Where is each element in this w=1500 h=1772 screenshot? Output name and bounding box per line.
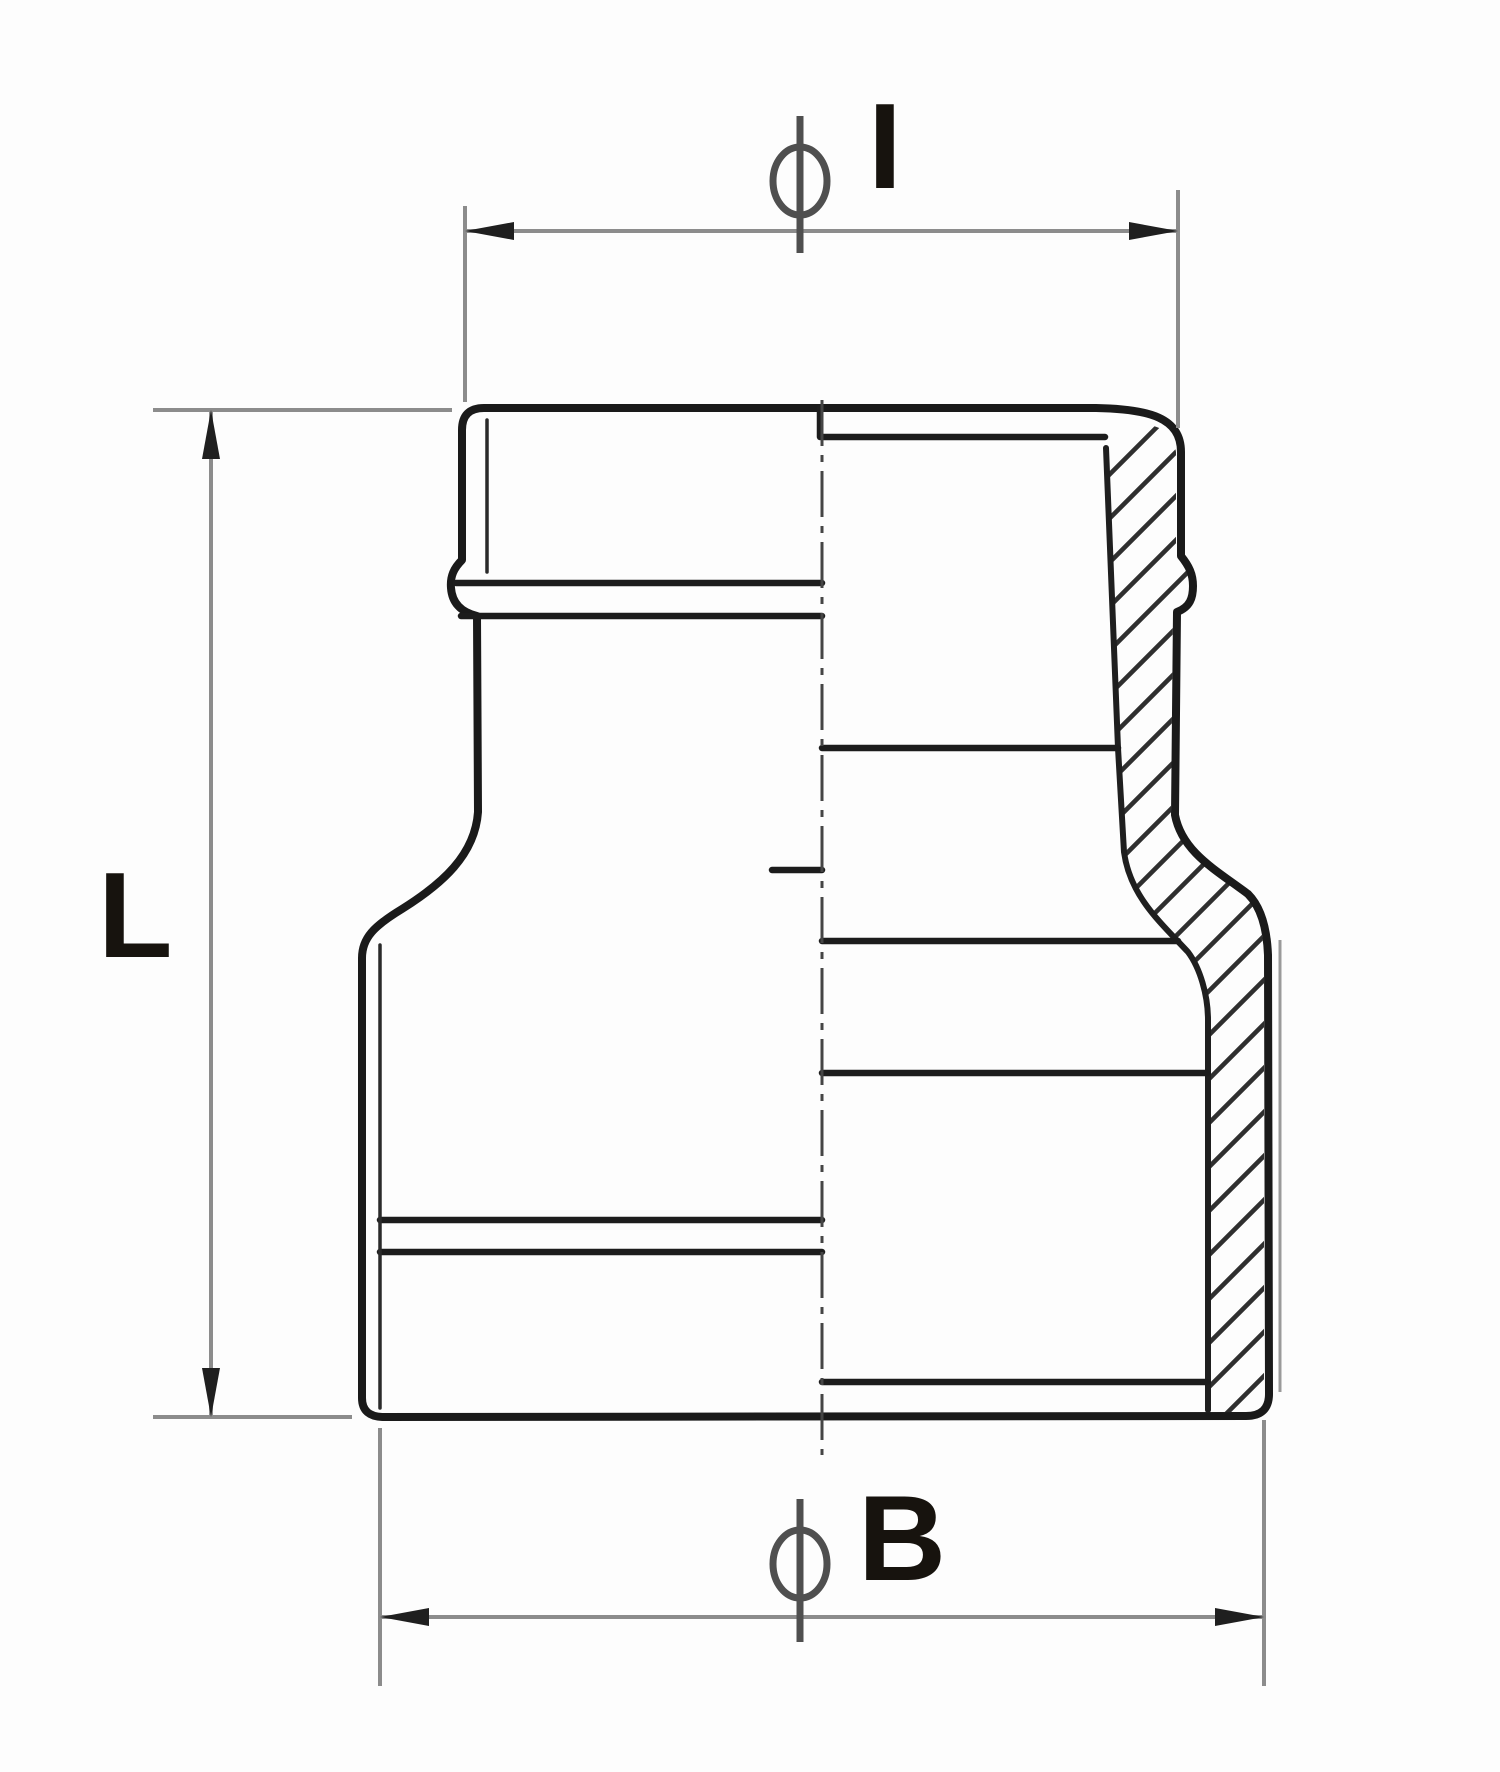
label-b: B: [858, 1470, 946, 1606]
reducing-socket-section-drawing: I L B: [0, 0, 1500, 1772]
section-hatch-right-wall: [1105, 425, 1264, 1412]
arrowhead-i-left: [465, 222, 514, 240]
technical-drawing-page: I L B: [0, 0, 1500, 1772]
dimension-i-group: I: [465, 78, 1178, 428]
arrowhead-l-bottom: [202, 1368, 220, 1417]
arrowhead-l-top: [202, 410, 220, 459]
arrowhead-b-right: [1215, 1608, 1264, 1626]
dimension-b-group: B: [380, 1420, 1264, 1686]
label-i: I: [868, 78, 902, 214]
arrowhead-i-right: [1129, 222, 1178, 240]
bore-feature-lines: [380, 408, 1207, 1382]
label-l: L: [98, 847, 173, 983]
arrowhead-b-left: [380, 1608, 429, 1626]
diameter-symbol-bottom: [773, 1499, 827, 1642]
fitting-body: [362, 400, 1280, 1455]
